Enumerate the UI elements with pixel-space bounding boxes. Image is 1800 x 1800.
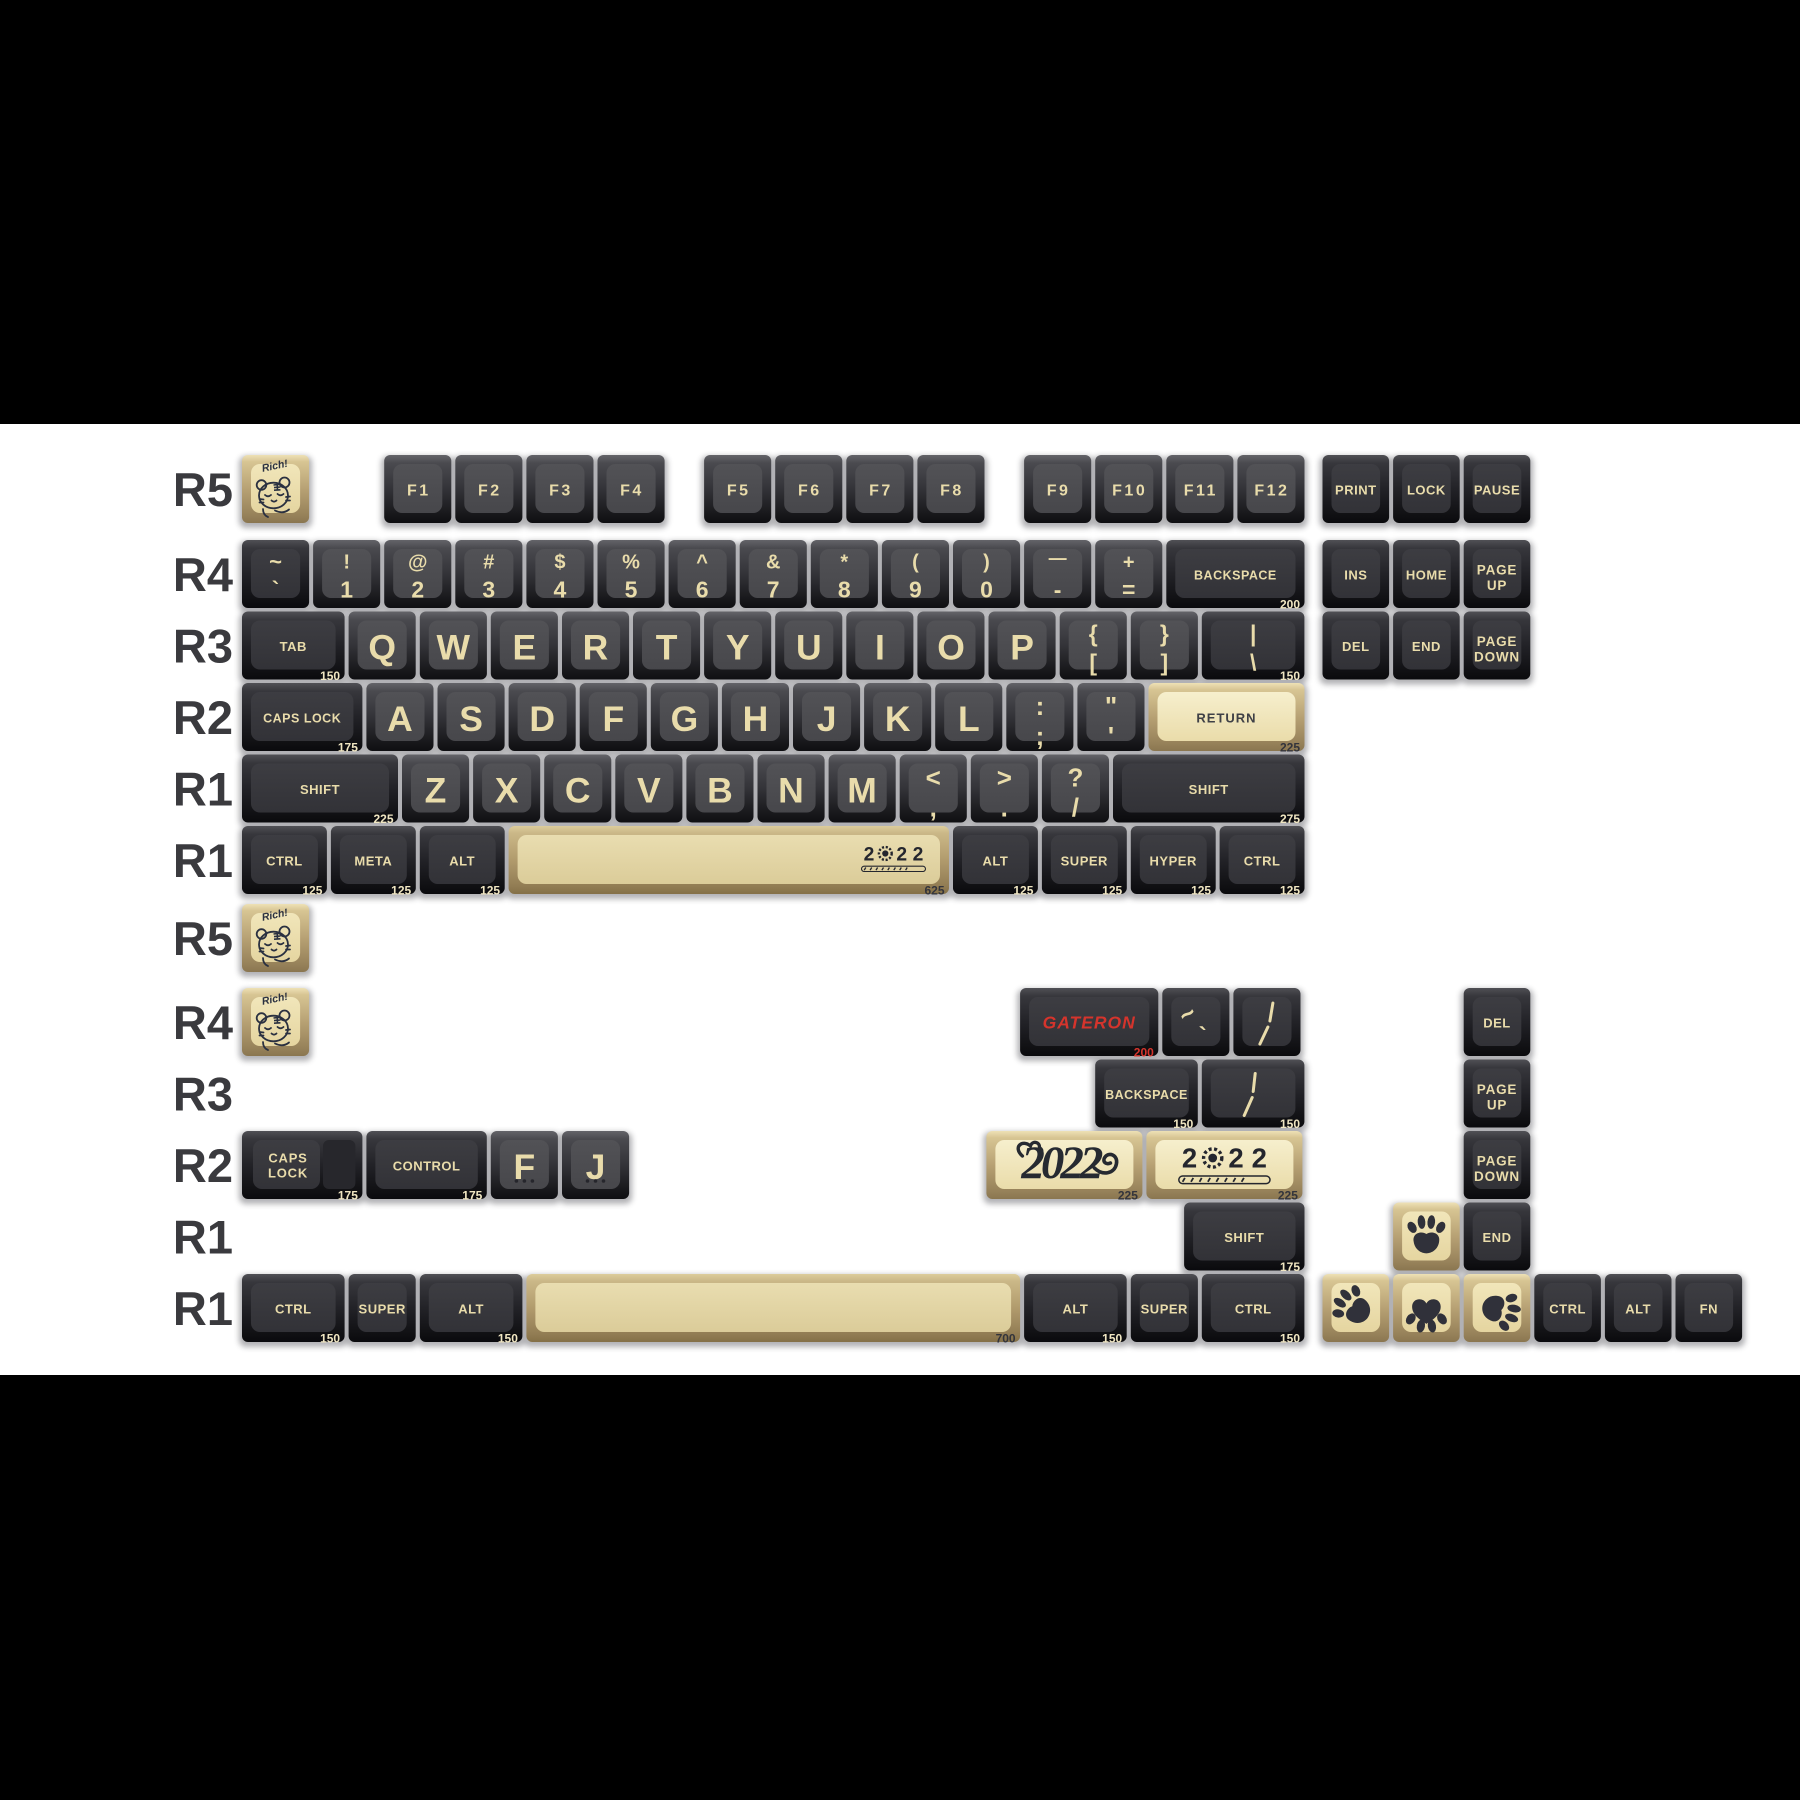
svg-text:F4: F4 — [620, 483, 644, 500]
svg-text:2: 2 — [1182, 1143, 1197, 1174]
svg-text:SHIFT: SHIFT — [1224, 1230, 1264, 1245]
svg-text:3: 3 — [482, 577, 495, 603]
svg-text:4: 4 — [554, 577, 567, 603]
svg-text:T: T — [656, 627, 678, 667]
svg-text:150: 150 — [1173, 1117, 1193, 1131]
svg-text:=: = — [1122, 577, 1135, 603]
svg-text:6: 6 — [696, 577, 709, 603]
svg-text:&: & — [766, 552, 780, 574]
svg-text:HOME: HOME — [1406, 568, 1447, 583]
svg-text:+: + — [1123, 552, 1135, 574]
svg-text:0: 0 — [980, 577, 993, 603]
svg-text:150: 150 — [1280, 669, 1300, 683]
svg-text:B: B — [707, 770, 733, 810]
svg-text:R3: R3 — [173, 1068, 233, 1121]
svg-text:}: } — [1160, 621, 1169, 647]
svg-text:150: 150 — [320, 1332, 340, 1346]
svg-text:$: $ — [554, 552, 565, 574]
svg-text:125: 125 — [1280, 884, 1300, 898]
svg-text::: : — [1036, 691, 1045, 721]
svg-text:D: D — [529, 699, 555, 739]
svg-text:`: ` — [272, 577, 279, 602]
svg-text:150: 150 — [498, 1332, 518, 1346]
svg-text:R2: R2 — [173, 691, 233, 744]
svg-text:625: 625 — [924, 884, 944, 898]
svg-text:/: / — [1072, 793, 1079, 823]
svg-text:L: L — [958, 699, 980, 739]
svg-text:SUPER: SUPER — [1141, 1302, 1188, 1317]
svg-text:PAGE: PAGE — [1477, 563, 1517, 578]
svg-text:BACKSPACE: BACKSPACE — [1105, 1088, 1188, 1102]
svg-text:@: @ — [408, 552, 428, 574]
svg-text:2: 2 — [1228, 1143, 1243, 1174]
svg-text:8: 8 — [838, 577, 851, 603]
svg-text:V: V — [637, 770, 661, 810]
svg-text:R1: R1 — [173, 834, 233, 887]
svg-text:SUPER: SUPER — [1061, 854, 1108, 869]
svg-text:125: 125 — [1102, 884, 1122, 898]
svg-text:175: 175 — [338, 741, 358, 755]
svg-text:150: 150 — [320, 669, 340, 683]
svg-text:BACKSPACE: BACKSPACE — [1194, 568, 1277, 582]
svg-text:E: E — [513, 627, 537, 667]
svg-text:#: # — [483, 552, 494, 574]
svg-text:(: ( — [912, 552, 919, 574]
svg-text:SUPER: SUPER — [359, 1302, 406, 1317]
svg-text:{: { — [1089, 621, 1098, 647]
svg-text:225: 225 — [373, 812, 393, 826]
svg-text:ALT: ALT — [1625, 1302, 1651, 1317]
svg-text:ALT: ALT — [458, 1302, 484, 1317]
svg-text:*: * — [840, 552, 848, 574]
svg-text:FN: FN — [1700, 1302, 1718, 1317]
svg-text:2: 2 — [1252, 1143, 1267, 1174]
svg-text:): ) — [983, 552, 990, 574]
svg-text:ALT: ALT — [449, 854, 475, 869]
svg-text:O: O — [937, 627, 965, 667]
svg-text:LOCK: LOCK — [1407, 483, 1446, 498]
svg-text:200: 200 — [1280, 598, 1300, 612]
svg-text:275: 275 — [1280, 812, 1300, 826]
svg-text:2: 2 — [913, 844, 924, 865]
svg-text:F9: F9 — [1047, 483, 1071, 500]
svg-text:META: META — [354, 854, 392, 869]
svg-text:CTRL: CTRL — [1549, 1302, 1586, 1317]
svg-text:ALT: ALT — [1062, 1302, 1088, 1317]
svg-text:R: R — [583, 627, 609, 667]
svg-text:Q: Q — [368, 627, 396, 667]
svg-text:K: K — [885, 699, 911, 739]
svg-text:150: 150 — [1102, 1332, 1122, 1346]
svg-text:125: 125 — [391, 884, 411, 898]
svg-text:F11: F11 — [1184, 483, 1218, 500]
svg-text:W: W — [437, 627, 471, 667]
svg-text:!: ! — [343, 552, 350, 574]
svg-text:DOWN: DOWN — [1474, 1169, 1520, 1184]
svg-text:': ' — [1108, 721, 1114, 751]
svg-text:P: P — [1010, 627, 1034, 667]
svg-text:%: % — [622, 552, 640, 574]
svg-text:UP: UP — [1487, 1098, 1507, 1113]
svg-text:X: X — [495, 770, 519, 810]
svg-text:^: ^ — [696, 552, 708, 574]
svg-text:F7: F7 — [869, 483, 893, 500]
svg-text:1: 1 — [340, 577, 353, 603]
svg-text:G: G — [671, 699, 699, 739]
svg-text:225: 225 — [1278, 1189, 1298, 1203]
svg-text:TAB: TAB — [280, 639, 307, 654]
svg-text:PAGE: PAGE — [1477, 1154, 1517, 1169]
svg-text:F2: F2 — [478, 483, 502, 500]
svg-text:END: END — [1412, 639, 1441, 654]
svg-text:150: 150 — [1280, 1332, 1300, 1346]
svg-text:R4: R4 — [173, 996, 233, 1049]
svg-text:J: J — [817, 699, 837, 739]
svg-text:LOCK: LOCK — [268, 1166, 308, 1181]
svg-text:175: 175 — [1280, 1260, 1300, 1274]
svg-text:M: M — [847, 770, 877, 810]
svg-text:END: END — [1483, 1230, 1512, 1245]
svg-text:CTRL: CTRL — [1235, 1302, 1272, 1317]
svg-text:PAGE: PAGE — [1477, 634, 1517, 649]
svg-text:<: < — [926, 763, 941, 793]
svg-text:PAGE: PAGE — [1477, 1082, 1517, 1097]
svg-text:~: ~ — [269, 549, 282, 574]
svg-text:5: 5 — [625, 577, 638, 603]
svg-text:I: I — [875, 627, 885, 667]
svg-text:2: 2 — [896, 844, 907, 865]
svg-text:200: 200 — [1134, 1046, 1154, 1060]
svg-text:N: N — [778, 770, 804, 810]
svg-text:225: 225 — [1280, 741, 1300, 755]
svg-text:125: 125 — [302, 884, 322, 898]
svg-text:CONTROL: CONTROL — [393, 1159, 461, 1174]
svg-text:": " — [1105, 691, 1117, 721]
svg-text:7: 7 — [767, 577, 780, 603]
svg-text:PAUSE: PAUSE — [1474, 483, 1520, 498]
svg-text:F12: F12 — [1254, 483, 1289, 500]
svg-text:?: ? — [1067, 763, 1083, 793]
svg-text:150: 150 — [1280, 1117, 1300, 1131]
svg-text:\: \ — [1250, 650, 1257, 676]
svg-text:125: 125 — [480, 884, 500, 898]
svg-text:R1: R1 — [173, 1282, 233, 1335]
svg-text:|: | — [1250, 621, 1256, 647]
svg-text:>: > — [997, 763, 1012, 793]
svg-text:PRINT: PRINT — [1335, 483, 1377, 498]
svg-text:-: - — [1054, 577, 1062, 603]
svg-text:DEL: DEL — [1342, 639, 1370, 654]
svg-text:,: , — [930, 793, 937, 823]
svg-text:]: ] — [1160, 650, 1168, 676]
svg-text:R1: R1 — [173, 763, 233, 816]
svg-text:CAPS: CAPS — [268, 1151, 307, 1166]
svg-text:CTRL: CTRL — [266, 854, 303, 869]
svg-text:Z: Z — [425, 770, 447, 810]
svg-text:S: S — [459, 699, 483, 739]
svg-text:ALT: ALT — [982, 854, 1008, 869]
svg-text:F8: F8 — [940, 483, 964, 500]
svg-text:[: [ — [1089, 650, 1097, 676]
svg-text:R1: R1 — [173, 1211, 233, 1264]
svg-text:C: C — [565, 770, 591, 810]
svg-text:SHIFT: SHIFT — [1189, 782, 1229, 797]
svg-text:GATERON: GATERON — [1043, 1013, 1136, 1033]
svg-text:F3: F3 — [549, 483, 573, 500]
svg-text:CAPS LOCK: CAPS LOCK — [263, 711, 341, 725]
svg-text:U: U — [796, 627, 822, 667]
svg-text:UP: UP — [1487, 578, 1507, 593]
svg-text:R5: R5 — [173, 463, 233, 516]
svg-text:F5: F5 — [727, 483, 751, 500]
svg-text:INS: INS — [1344, 568, 1367, 583]
svg-text:125: 125 — [1191, 884, 1211, 898]
svg-text:F: F — [602, 699, 624, 739]
svg-text:A: A — [387, 699, 413, 739]
svg-text:700: 700 — [996, 1332, 1016, 1346]
svg-text:CTRL: CTRL — [275, 1302, 312, 1317]
svg-text:175: 175 — [338, 1189, 358, 1203]
svg-text:.: . — [1001, 793, 1008, 823]
svg-text:`: ` — [1199, 1023, 1207, 1050]
svg-text:—: — — [1049, 548, 1067, 568]
svg-text:;: ; — [1036, 721, 1045, 751]
svg-text:175: 175 — [462, 1189, 482, 1203]
svg-text:125: 125 — [1013, 884, 1033, 898]
svg-text:9: 9 — [909, 577, 922, 603]
svg-text:DEL: DEL — [1483, 1016, 1511, 1031]
svg-text:F1: F1 — [407, 483, 431, 500]
svg-text:225: 225 — [1118, 1189, 1138, 1203]
svg-text:CTRL: CTRL — [1244, 854, 1281, 869]
svg-text:F6: F6 — [798, 483, 822, 500]
svg-text:Y: Y — [726, 627, 750, 667]
svg-text:2: 2 — [864, 844, 875, 865]
svg-text:F10: F10 — [1112, 483, 1147, 500]
svg-text:R4: R4 — [173, 548, 233, 601]
svg-text:R3: R3 — [173, 620, 233, 673]
svg-text:R2: R2 — [173, 1139, 233, 1192]
svg-text:R5: R5 — [173, 912, 233, 965]
svg-text:DOWN: DOWN — [1474, 650, 1520, 665]
svg-text:SHIFT: SHIFT — [300, 782, 340, 797]
svg-text:H: H — [743, 699, 769, 739]
svg-text:HYPER: HYPER — [1150, 854, 1197, 869]
svg-text:2: 2 — [411, 577, 424, 603]
svg-text:RETURN: RETURN — [1196, 711, 1256, 726]
